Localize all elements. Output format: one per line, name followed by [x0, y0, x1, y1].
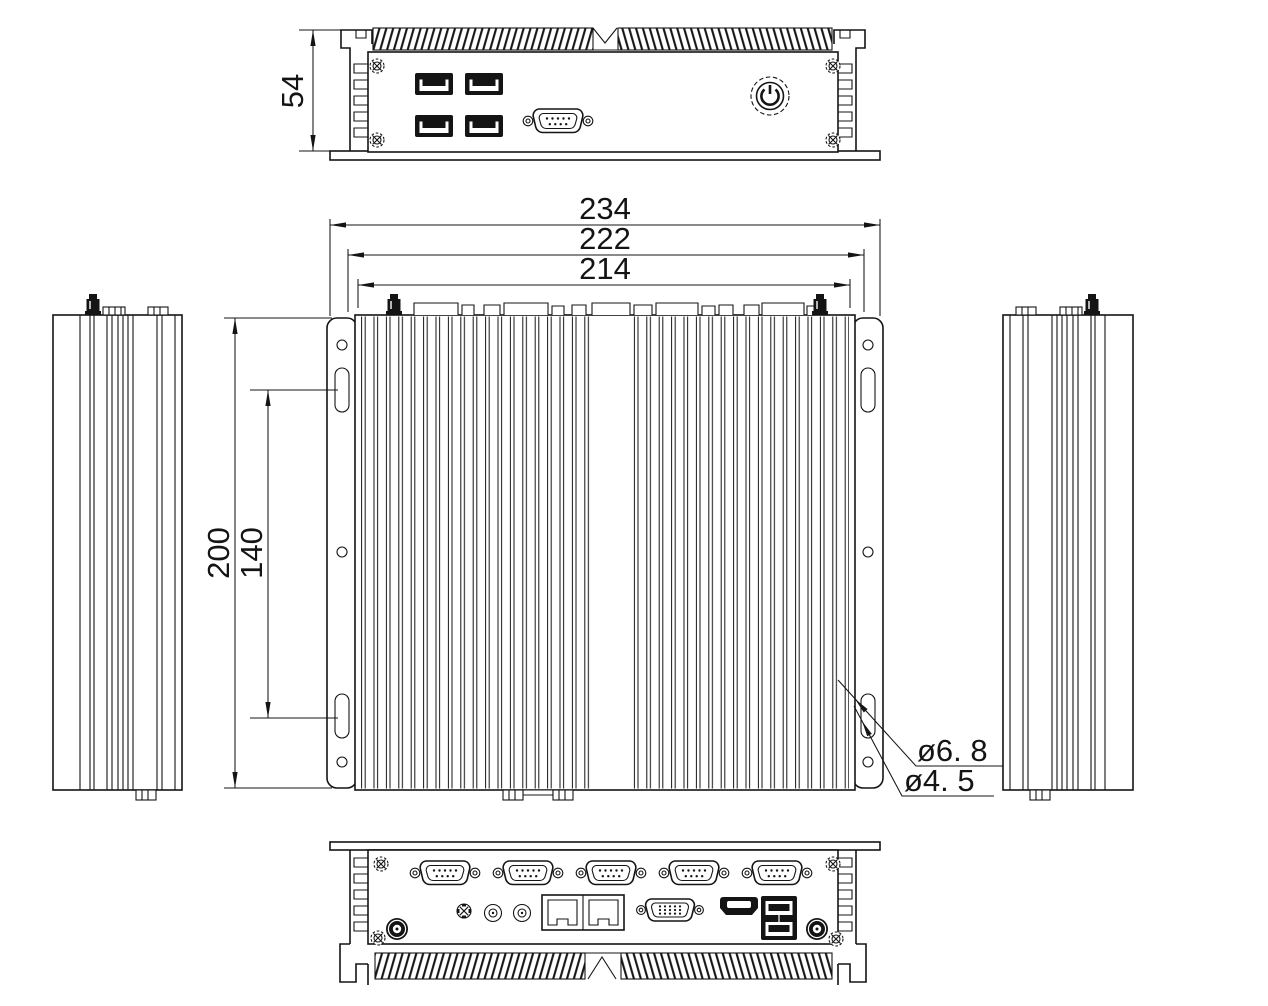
left-side-view [53, 294, 182, 800]
top-fins-left-half [361, 317, 592, 789]
mount-holes-right [861, 340, 875, 767]
rear-right-foot [838, 944, 866, 985]
right-side-bottom-tab [1030, 790, 1050, 800]
left-side-top-profiles [85, 294, 168, 315]
front-panel-view: 54 [275, 28, 880, 160]
rear-screw-tr [826, 857, 840, 871]
mount-slot [335, 694, 349, 738]
antenna-connector-side [1084, 294, 1100, 315]
usb-stacked-ports [761, 896, 797, 940]
front-top-fin-band-right [618, 28, 832, 50]
left-side-bottom-tab [136, 790, 156, 800]
top-view: 200 140 ø6. 8 ø4. 5 [201, 294, 1004, 800]
top-fins-right-half [630, 317, 849, 789]
front-left-fin-teeth [354, 64, 368, 137]
dim-label-214: 214 [579, 251, 631, 286]
dim-front-height: 54 [275, 30, 341, 151]
right-side-top-profiles [1016, 294, 1100, 315]
audio-jack-1 [485, 905, 502, 922]
width-dimensions: 234 222 214 [330, 191, 880, 316]
mount-slot [861, 368, 875, 412]
mount-hole [863, 547, 873, 557]
antenna-connector-top-left [386, 294, 402, 315]
rj45-lan-ports [542, 895, 624, 930]
dim-width-214: 214 [358, 251, 850, 308]
usb-port-front-3 [415, 115, 453, 137]
mount-hole [863, 340, 873, 350]
rear-panel-view [330, 842, 880, 985]
dim-label-hole-dia: ø4. 5 [904, 763, 975, 798]
rear-left-foot [340, 944, 368, 985]
dim-slot-spacing-140: 140 [234, 390, 338, 718]
antenna-connector-top-right [812, 294, 828, 315]
mount-hole [337, 340, 347, 350]
mount-hole [863, 757, 873, 767]
front-screw-br [826, 133, 840, 147]
front-screw-bl [370, 133, 384, 147]
antenna-connector-rear-left [386, 918, 408, 940]
top-edge-connector-profiles [386, 294, 828, 315]
rear-top-lip [330, 842, 880, 850]
front-right-fin-teeth [838, 64, 852, 137]
front-right-wall-notch [840, 30, 850, 38]
dim-label-54: 54 [275, 74, 310, 108]
rear-bottom-fin-band-right [621, 953, 832, 979]
reset-button [457, 904, 471, 918]
mount-holes-left [335, 340, 349, 767]
right-side-view [1003, 294, 1133, 800]
front-top-fin-band-left [373, 28, 593, 50]
rear-right-fin-teeth [838, 858, 852, 931]
technical-drawing-page: 54 234 222 214 [0, 0, 1268, 1006]
audio-jack-2 [514, 905, 531, 922]
rear-bottom-fin-band-left [375, 953, 585, 979]
hdmi-port [720, 897, 758, 915]
rear-left-fin-teeth [354, 858, 368, 931]
rear-screw-br [829, 932, 843, 946]
top-view-bottom-tabs [503, 790, 573, 800]
antenna-connector-side [85, 294, 101, 315]
rear-band-notch [585, 953, 621, 979]
usb-port-front-1 [415, 73, 453, 95]
antenna-connector-rear-right [806, 918, 828, 940]
rear-screw-bl [371, 931, 385, 945]
usb-port-front-4 [465, 115, 503, 137]
usb-port-front-2 [465, 73, 503, 95]
front-left-wall-notch [356, 30, 366, 38]
mount-hole [337, 547, 347, 557]
mount-hole [337, 757, 347, 767]
front-screw-tr [826, 59, 840, 73]
rear-screw-tl [374, 857, 388, 871]
front-top-band-notch [593, 28, 618, 50]
dim-label-200: 200 [201, 527, 236, 579]
dim-label-140: 140 [234, 527, 269, 579]
embedded-pc-dimension-drawing: 54 234 222 214 [0, 0, 1268, 1006]
front-screw-tl [370, 59, 384, 73]
